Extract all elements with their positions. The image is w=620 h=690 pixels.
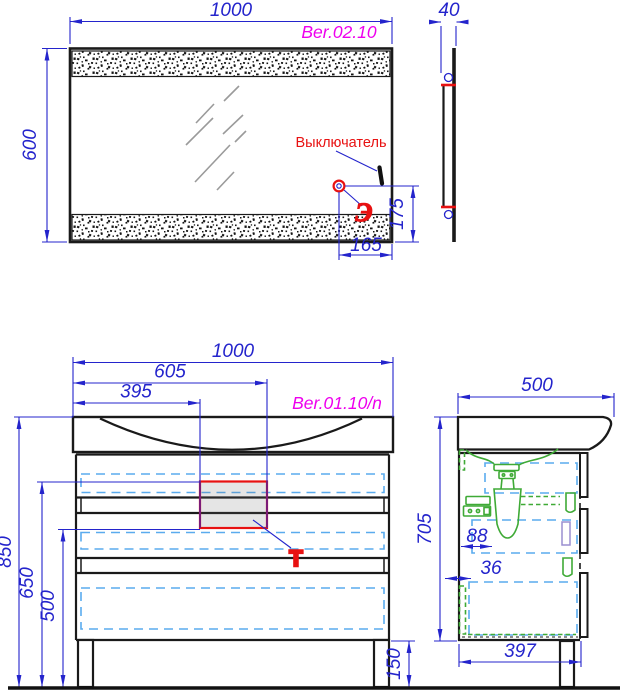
dim-mirror-height: 600 <box>20 49 67 243</box>
dim-label-mirror-width: 1000 <box>210 0 253 21</box>
leg-side <box>560 641 574 687</box>
side-drawer-box-3 <box>469 582 577 635</box>
outlet-point-icon <box>334 181 345 192</box>
mirror-side-view: 40 <box>430 0 468 242</box>
dim-label-outlet-vertical: 175 <box>387 198 408 230</box>
bottom-fitting-hidden <box>460 586 577 635</box>
dim-total-height: 850 <box>0 417 73 687</box>
countertop-front <box>73 417 393 452</box>
switch-mark <box>380 168 383 184</box>
dim-label-opening-top: 650 <box>17 567 38 599</box>
dim-label-opening-right: 605 <box>154 362 186 383</box>
dim-label-total-height: 850 <box>0 536 16 568</box>
drain-pipe-hidden <box>521 493 575 512</box>
water-leader <box>253 520 291 548</box>
drawer-box-2-hidden <box>81 533 384 550</box>
electric-symbol: Э <box>356 198 373 227</box>
dim-label-cabinet-width: 1000 <box>212 341 255 362</box>
dim-label-mirror-depth: 40 <box>438 0 460 21</box>
technical-drawing-sheet: 1000 600 Ber.02.10 Выключатель Э 175 <box>0 0 620 690</box>
dim-label-body-depth: 397 <box>504 641 537 662</box>
dim-label-legs-height: 150 <box>384 648 405 680</box>
mirror-bottom-mosaic-band <box>72 215 390 241</box>
bracket-lower-right <box>563 558 572 576</box>
dim-label-opening-bottom: 500 <box>38 590 59 622</box>
water-connection-symbol: Т <box>289 546 303 571</box>
dim-label-mirror-height: 600 <box>20 129 41 161</box>
cabinet-model-label: Ber.01.10/n <box>292 393 382 413</box>
dim-label-side-height: 705 <box>415 513 436 545</box>
leg-left <box>78 640 93 687</box>
dim-opening-bottom-height: 500 <box>38 530 200 688</box>
mount-point-top-icon <box>445 74 453 82</box>
mirror-front-view: 1000 600 Ber.02.10 Выключатель Э 175 <box>20 0 419 260</box>
mount-point-bottom-icon <box>445 211 453 219</box>
cabinet-side-view: 500 705 88 36 397 <box>415 375 614 687</box>
switch-label: Выключатель <box>296 135 387 151</box>
dim-mirror-depth: 40 <box>430 0 468 73</box>
drawer-fronts-side <box>580 453 588 637</box>
countertop-side <box>458 417 611 450</box>
dim-label-back-gap: 36 <box>480 558 502 579</box>
wall-bracket-left <box>464 497 491 517</box>
cabinet-front-view: Т 1000 605 395 Ber.01.10/n 850 650 <box>0 341 415 687</box>
drawer-box-3-hidden <box>81 588 384 629</box>
dim-back-gap: 36 <box>445 558 502 579</box>
drawing-canvas: 1000 600 Ber.02.10 Выключатель Э 175 <box>0 0 620 690</box>
dim-siphon-offset: 88 <box>461 526 492 547</box>
dim-label-siphon-offset: 88 <box>466 526 488 547</box>
mirror-top-mosaic-band <box>72 51 390 77</box>
drawer-rail-hidden <box>562 522 570 545</box>
service-opening-highlight <box>200 482 267 529</box>
dim-label-outlet-horizontal: 165 <box>350 235 382 256</box>
dim-side-depth: 500 <box>458 375 614 417</box>
dim-label-side-depth: 500 <box>521 375 553 396</box>
dim-side-height: 705 <box>415 417 457 641</box>
dim-label-opening-left: 395 <box>120 382 152 403</box>
mirror-model-label: Ber.02.10 <box>301 22 377 42</box>
